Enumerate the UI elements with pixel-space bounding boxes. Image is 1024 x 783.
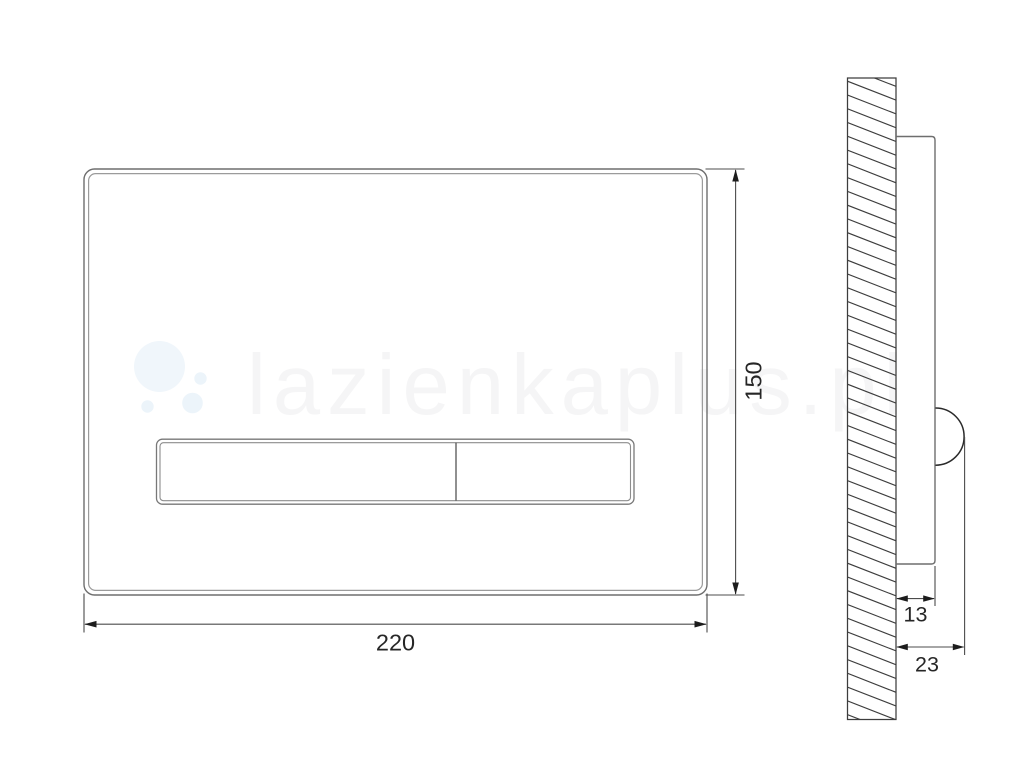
svg-text:23: 23 bbox=[915, 653, 939, 677]
svg-text:lazienkaplus.pl: lazienkaplus.pl bbox=[247, 338, 910, 433]
svg-text:220: 220 bbox=[376, 630, 415, 656]
svg-text:13: 13 bbox=[904, 603, 928, 627]
svg-text:150: 150 bbox=[741, 361, 767, 400]
